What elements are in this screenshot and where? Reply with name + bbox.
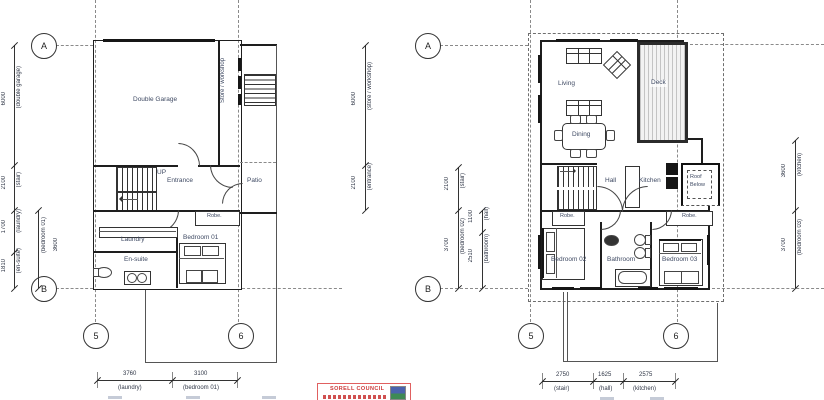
dining-chair [554,130,563,141]
dim-value: 3100 [194,371,207,377]
dim-tick [362,207,369,214]
grid-bubble-5-left: 5 [83,323,109,349]
sofa [566,100,602,116]
grid-label: 6 [673,331,678,341]
window [538,95,541,123]
room-label-bedroom03: Bedroom 03 [662,257,697,264]
room-label-roof-below: Roof Below [690,173,710,190]
council-stamp-clipped-line [323,395,388,399]
dim-value: 1625 [598,372,611,378]
room-label-laundry: Laundry [121,237,145,244]
bed-02-headboard [542,228,544,278]
dim-label: (hall) [484,207,490,220]
dining-chair [606,130,615,141]
room-label-ensuite: En-suite [124,257,148,264]
ff-lower-outline-h [563,361,718,362]
window [638,287,658,290]
bathroom-west-wall [600,222,602,290]
dim-label: (stair) [16,172,22,187]
bathroom-basin [604,235,619,246]
grid-label: A [41,41,47,51]
grid-bubble-a-left: A [31,33,57,59]
dim-label: (bedroom 03) [797,219,803,255]
dim-label: (stair) [554,386,569,392]
dining-chair [586,115,597,124]
room-label-garage: Double Garage [133,97,177,104]
patio-north-edge [240,44,277,46]
room-label-kitchen: Kitchen [639,178,661,185]
dim-value: 6000 [1,92,7,105]
council-stamp: SORELL COUNCIL [317,383,411,400]
external-stair [244,74,276,106]
patio-east-edge [276,45,277,362]
dim-label: (bedroom 01) [183,385,219,391]
stair-arrow-head [116,196,122,202]
dim-label: (hall) [599,386,612,392]
dim-line [97,380,237,381]
grid-bubble-a-right: A [415,33,441,59]
toilet-cistern [93,268,99,277]
living-south-wall [540,163,597,165]
pillow [546,232,555,252]
ff-lower-outline-v3 [717,303,718,362]
grid-label: 5 [93,331,98,341]
grid-line-a-leader-right [440,45,528,46]
bed-foot-box [681,271,699,284]
dim-value: 1810 [1,259,7,272]
ground-lower-outline-h [145,362,277,363]
dim-value: 3600 [781,164,787,177]
basin [127,273,137,283]
dim-label: (kitchen) [797,153,803,176]
sofa [566,48,602,64]
ff-lower-outline-v1 [563,292,564,362]
dim-line [542,381,675,382]
room-label-patio: Patio [247,178,262,185]
grid-bubble-b-right: B [415,276,441,302]
dining-chair [586,149,597,158]
dim-value: 2100 [444,177,450,190]
grid-bubble-b-left: B [31,276,57,302]
council-stamp-title: SORELL COUNCIL [330,387,384,393]
dim-label: (laundry) [118,385,142,391]
dim-value: 2100 [351,176,357,189]
bed-03-headboard [659,239,701,241]
dim-line [795,140,796,288]
dim-label: (bathroom) [484,234,490,263]
dim-value: 1700 [1,220,7,233]
dim-label: (bedroom 01) [41,217,47,253]
store-window [238,94,241,105]
window [580,287,602,290]
window [664,287,698,290]
basin [137,273,147,283]
bed-02-blanket-line [556,228,557,278]
dim-label: (store / workshop) [367,62,373,110]
dining-chair [570,115,581,124]
dim-line [38,210,39,288]
room-label-robe-bed03: Robe. [682,214,697,220]
grid-label: B [425,284,431,294]
room-label-deck: Deck [650,80,667,87]
clipped-text [262,396,276,399]
kitchen-east-wall [701,138,703,165]
clipped-text [186,396,200,399]
dim-value: 3760 [123,371,136,377]
grid-bubble-6-left: 6 [228,323,254,349]
room-label-robe-bed02: Robe. [560,214,575,220]
internal-stair-upper [116,167,157,192]
garage-door-head [103,39,215,42]
grid-line-b-ext-left [242,288,342,289]
grid-bubble-5-right: 5 [518,323,544,349]
dim-value: 3600 [53,238,59,251]
toilet-cistern [645,235,651,245]
ff-stair-rail [557,187,595,190]
room-label-bedroom01: Bedroom 01 [183,235,218,242]
pillow [202,246,219,256]
dim-value: 3700 [444,238,450,251]
council-logo [390,386,406,400]
room-label-bedroom02: Bedroom 02 [551,257,586,264]
dim-line [458,167,459,288]
ff-lower-outline-v2 [567,292,568,362]
store-window [238,58,241,71]
room-label-store: Store / workshop [220,58,226,103]
grid-label: 6 [238,331,243,341]
dim-value: 2750 [556,372,569,378]
room-label-hall: Hall [605,178,616,185]
room-label-dining: Dining [572,132,590,139]
stair-arrow-line [560,171,574,172]
appliance-divider [666,175,678,177]
dim-label: (stair) [460,173,466,188]
window [538,235,541,269]
dim-value: 6000 [351,92,357,105]
grid-label: A [425,41,431,51]
dim-tick [11,285,18,292]
room-label-bathroom: Bathroom [607,257,635,264]
stair-arrow-head [573,168,579,174]
patio-south-wall [240,212,277,214]
dim-value: 3700 [781,238,787,251]
dim-value: 2100 [1,176,7,189]
stair-arrow-line [121,199,138,200]
bed-01-blanket-line [179,258,224,259]
dim-label: (bedroom 02) [460,218,466,254]
pillow [681,243,697,252]
laundry-south-wall [93,251,177,253]
bed-foot-box [202,270,218,283]
dim-line [365,45,366,210]
room-label-robe-ground: Robe. [207,214,222,220]
room-label-entrance: Entrance [167,178,193,185]
dim-label: (entrance) [367,163,373,190]
bed-foot-box [186,270,202,283]
floor-plan-sheet: A B 5 6 A B 5 6 Double Garage Store / wo [0,0,824,400]
dim-value: 2575 [639,372,652,378]
grid-bubble-6-right: 6 [663,323,689,349]
store-window [238,76,241,89]
toilet-cistern [645,248,651,258]
ground-lower-outline-v [145,290,146,362]
room-label-living: Living [558,81,575,88]
window [610,39,638,42]
room-label-up: UP [157,170,166,177]
dim-value: 2510 [468,249,474,262]
dim-label: (double garage) [16,66,22,108]
dim-value: 1100 [468,210,474,223]
window [538,55,541,83]
window [556,39,600,42]
pillow [184,246,201,256]
grid-line-b-ext-right [712,288,824,289]
dim-label: (kitchen) [633,386,656,392]
dim-label: (laundry) [16,209,22,233]
internal-stair-lower [116,192,157,211]
pillow [663,243,679,252]
clipped-text [108,396,122,399]
bed-03-blanket-line [659,253,701,254]
dining-chair [570,149,581,158]
grid-label: 5 [528,331,533,341]
window [552,287,574,290]
dim-label: (en-suite) [16,248,22,273]
grid-line-a-leader-left [56,45,93,46]
bathtub-inner [618,271,647,284]
dim-line [482,210,483,288]
laundry-bench-line [99,231,176,232]
bed-foot-box [664,271,682,284]
patio-dashed-edge [240,162,276,163]
deck-area [637,42,688,143]
grid-line-b-leader-left [56,288,93,289]
window [707,235,710,265]
grid-line-b-leader-right [440,288,528,289]
